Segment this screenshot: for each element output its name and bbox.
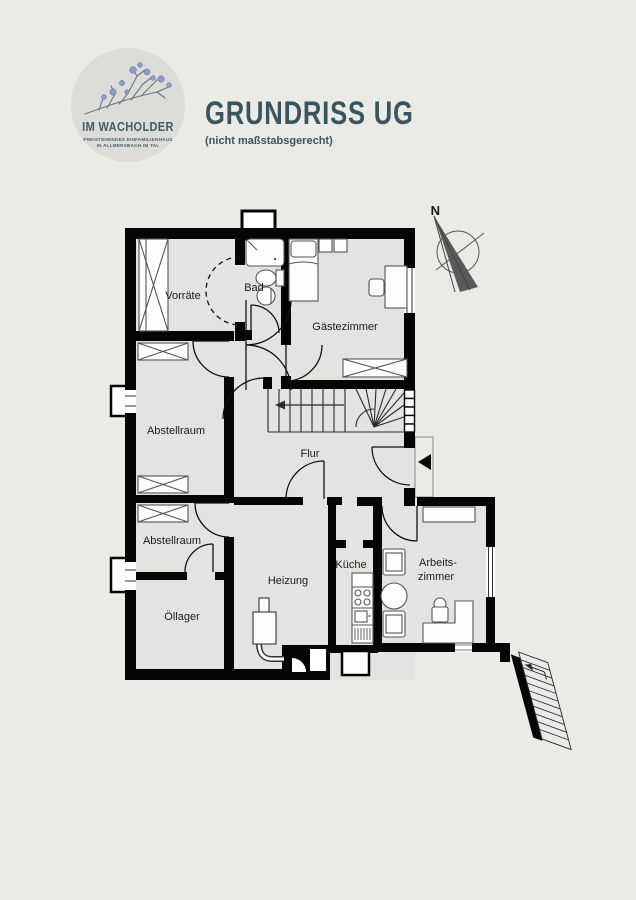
window-left-1 bbox=[125, 390, 136, 413]
window-arbeitszimmer-sued bbox=[455, 643, 472, 652]
light-shaft-kueche bbox=[342, 651, 369, 675]
floor-plan: N bbox=[0, 0, 636, 900]
room-label-bad: Bad bbox=[244, 282, 264, 294]
room-label-arbeitszimmer-2: zimmer bbox=[418, 571, 454, 583]
room-label-kueche: Küche bbox=[335, 559, 366, 571]
room-label-abstellraum-unten: Abstellraum bbox=[143, 535, 201, 547]
armchair-1 bbox=[383, 549, 405, 575]
shelf-abstellraum-oben-1 bbox=[138, 343, 188, 360]
kitchen-counter bbox=[352, 573, 373, 643]
staircase-exterior bbox=[509, 649, 571, 752]
room-label-flur: Flur bbox=[301, 448, 320, 460]
shower bbox=[246, 239, 284, 266]
page: IM WACHOLDER FREISTEHENDES EINFAMILIENHA… bbox=[0, 0, 636, 900]
shelf-abstellraum-unten bbox=[138, 505, 188, 522]
room-label-vorraete: Vorräte bbox=[165, 290, 200, 302]
window-stairwell bbox=[405, 390, 415, 432]
room-label-gaestezimmer: Gästezimmer bbox=[312, 321, 378, 333]
bed bbox=[289, 239, 318, 301]
entry-arrow bbox=[418, 454, 431, 470]
window-left-2 bbox=[125, 562, 136, 590]
compass: N bbox=[431, 203, 484, 292]
room-label-heizung: Heizung bbox=[268, 575, 308, 587]
armchair-2 bbox=[383, 611, 405, 637]
room-label-abstellraum-oben: Abstellraum bbox=[147, 425, 205, 437]
room-label-oellager: Öllager bbox=[164, 611, 200, 623]
compass-north-label: N bbox=[431, 203, 440, 218]
round-table bbox=[381, 583, 407, 609]
shelf-gaestezimmer bbox=[343, 359, 407, 377]
wardrobe-vorraete bbox=[139, 239, 168, 331]
room-label-arbeitszimmer-1: Arbeits- bbox=[419, 557, 457, 569]
shelf-abstellraum-oben-2 bbox=[138, 476, 188, 493]
shelf-arbeitszimmer bbox=[423, 507, 475, 522]
window-arbeitszimmer bbox=[486, 547, 495, 597]
